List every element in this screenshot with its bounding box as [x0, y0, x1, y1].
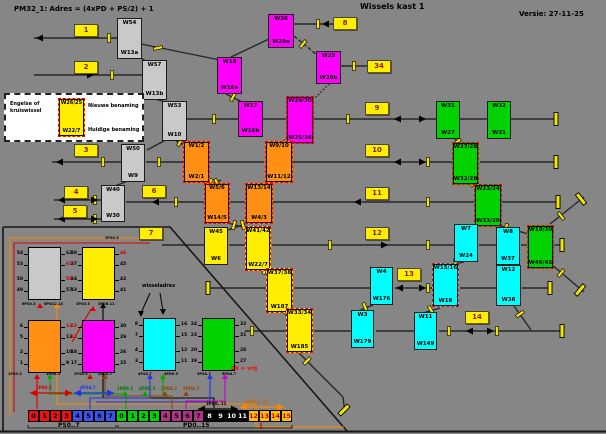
switch-new-name: W8	[503, 230, 513, 236]
route-button-11[interactable]: 11	[365, 187, 389, 200]
switch-new-name: W3	[358, 313, 368, 319]
modec-pin-number: 1	[15, 362, 23, 367]
modec-pin-number: 26	[120, 351, 126, 356]
bus-range-arrowhead	[30, 390, 37, 397]
bus-cell-pd-8-11-8: 8	[204, 410, 215, 422]
direction-arrow	[419, 116, 426, 123]
insulator-tick	[175, 198, 178, 207]
switch-new-name: W13/14	[247, 186, 270, 192]
legend-box: Engelse of kruiswissel W26/25 W22/7 Nieu…	[4, 93, 144, 142]
diagram-label: 5PS4.7	[197, 373, 211, 377]
track-diagonal	[514, 306, 531, 330]
diagram-label: 3PD8.11	[98, 303, 115, 307]
modec-pin-number: 42	[120, 278, 126, 283]
diagram-label: 2PD4.7	[98, 373, 112, 377]
switch-old-name: W29a	[272, 40, 289, 46]
switch-w29-30[interactable]: W29/30W25/26	[286, 96, 314, 144]
switch-old-name: W29b	[320, 76, 338, 82]
modec-pin-number: 33	[69, 289, 77, 294]
bus-cell-ps-high-4: 4	[72, 410, 83, 422]
modec-pin-number: 16	[181, 323, 187, 328]
wire-arrowhead	[90, 306, 96, 311]
switch-old-name: W16b	[242, 129, 260, 135]
bus-cell-pd-12-15-14: 14	[270, 410, 281, 422]
diagram-label: 6PD12.15	[44, 303, 63, 307]
bus-cell-ps-low-3: 3	[61, 410, 72, 422]
switch-w53[interactable]: W53W10	[162, 101, 187, 141]
switch-w13-14[interactable]: W13/14W4/3	[245, 183, 273, 224]
wisseladres-arrowhead	[160, 309, 166, 315]
wire-arrowhead	[34, 374, 40, 379]
switch-old-name: W38	[502, 298, 516, 304]
insulator-tick	[213, 115, 216, 124]
modec-module-modec6	[28, 247, 61, 300]
insulator-tick	[329, 241, 332, 250]
diagram-label: 3PD8..11	[206, 402, 226, 406]
modec-pin-tick	[78, 327, 82, 328]
bus-cell-ps-high-5: 5	[83, 410, 94, 422]
bus-cell-pd-4-7-5: 5	[171, 410, 182, 422]
insulator-tick	[353, 62, 356, 71]
diagram-label: 1PD0.3	[46, 373, 60, 377]
modec-pin-number: 31	[240, 334, 246, 339]
bus-cell-pd-12-15-13: 13	[259, 410, 270, 422]
insulator-tick	[347, 115, 350, 124]
switch-old-name: W30	[106, 214, 120, 220]
modec-pin-tick	[115, 364, 119, 365]
switch-w32[interactable]: W32W31	[487, 101, 511, 139]
modec-pin-number: 38	[69, 252, 77, 257]
switch-new-name: W1/2	[189, 144, 205, 150]
diagram-label: 4PD0.3	[164, 373, 178, 377]
modec-pin-tick	[24, 327, 28, 328]
legend-huidige-benaming: Huidige benaming	[88, 127, 139, 134]
switch-new-name: W57	[148, 63, 162, 69]
modec-pin-number: 22	[69, 325, 77, 330]
route-button-10[interactable]: 10	[365, 144, 389, 157]
route-button-5[interactable]: 5	[63, 205, 87, 218]
bus-cell-ps-high-6: 6	[94, 410, 105, 422]
track-diagonal	[294, 36, 317, 55]
diagram-label: 4PD0.3	[139, 387, 155, 391]
switch-new-name: W26	[274, 17, 288, 23]
route-button-6[interactable]: 6	[142, 185, 166, 198]
switch-w23-24[interactable]: W23/24W33/20	[474, 184, 502, 227]
diagram-label: 2PS0.3	[74, 373, 88, 377]
end-of-track-marker	[560, 239, 564, 252]
switch-old-name: W4/3	[251, 216, 267, 222]
modec-pin-number: 24	[189, 323, 197, 328]
switch-w12[interactable]: W12W38	[496, 265, 521, 306]
modec-pin-tick	[24, 280, 28, 281]
switch-new-name: W17	[244, 104, 258, 110]
switch-old-name: W13a	[121, 51, 138, 57]
switch-new-name: W23/24	[476, 187, 499, 193]
direction-arrow	[394, 159, 401, 166]
direction-arrow	[152, 199, 159, 206]
diagram-label: 4PS4.7	[80, 386, 96, 390]
diagram-label: PD0..15	[183, 423, 209, 429]
switch-w18[interactable]: W18W16a	[217, 57, 242, 94]
bus-range-arrowhead	[65, 390, 72, 397]
switch-w19-20[interactable]: W19/20W46/45	[527, 225, 554, 269]
switch-w17[interactable]: W17W16b	[238, 101, 263, 137]
diagram-label: 1PD0.3	[117, 387, 133, 391]
end-of-track-marker	[554, 113, 558, 126]
modec-pin-tick	[235, 362, 239, 363]
switch-w4[interactable]: W4W176	[370, 267, 393, 305]
direction-arrow	[419, 159, 426, 166]
switch-old-name: W10	[168, 133, 182, 139]
switch-w9-10[interactable]: W9/10W11/12	[265, 141, 293, 183]
modec-pin-number: 53	[15, 263, 23, 268]
modec-pin-tick	[115, 327, 119, 328]
modec-pin-number: 21	[69, 336, 77, 341]
wissels-kast-panel: PM32_1: Adres = (4xPD + PS/2) + 1 Wissel…	[0, 0, 606, 434]
modec-pin-tick	[24, 254, 28, 255]
route-button-1[interactable]: 1	[74, 24, 98, 37]
modec-module-modec2	[82, 320, 115, 373]
switch-old-name: W9	[128, 174, 138, 180]
modec-pin-tick	[24, 291, 28, 292]
route-button-7[interactable]: 7	[139, 227, 163, 240]
diagram-label: 5PD4.7	[222, 373, 236, 377]
insulator-tick	[515, 310, 524, 318]
wire-arrowhead	[183, 391, 189, 396]
bus-cell-pd-0-3-1: 1	[127, 410, 138, 422]
page-title: Wissels kast 1	[360, 2, 424, 11]
modec-pin-tick	[61, 265, 65, 266]
modec-pin-tick	[139, 351, 143, 352]
bus-cell-pd-8-11-9: 9	[215, 410, 226, 422]
track-diagonal	[147, 141, 164, 150]
track-diagonal	[299, 353, 343, 397]
bus-range-arrowhead	[74, 390, 81, 397]
switch-old-name: W46/45	[529, 261, 552, 267]
switch-old-name: W31	[492, 131, 506, 137]
switch-new-name: W19/20	[529, 228, 552, 234]
insulator-tick	[102, 158, 105, 167]
diagram-label: 1PS0.3	[36, 386, 52, 390]
switch-w11[interactable]: W11W149	[414, 312, 437, 350]
modec-pin-tick	[115, 265, 119, 266]
modec-pin-tick	[235, 351, 239, 352]
legend-nieuwe-benaming: Nieuwe benaming	[88, 103, 139, 110]
modec-pin-number: 23	[189, 334, 197, 339]
switch-old-name: W14/5	[207, 216, 227, 222]
modec-pin-tick	[78, 280, 82, 281]
switch-old-name: W6	[211, 257, 221, 263]
switch-new-name: W31	[441, 104, 455, 110]
switch-new-name: W15/16	[434, 266, 457, 272]
switch-old-name: W33/20	[476, 219, 499, 225]
modec-pin-number: 27	[240, 360, 246, 365]
diagram-label: 4PS4.7	[138, 373, 152, 377]
direction-arrow	[56, 159, 63, 166]
modec-pin-tick	[115, 291, 119, 292]
switch-w7[interactable]: W7W24	[454, 224, 478, 262]
diagram-label: 6PD12..15	[245, 400, 268, 404]
switch-new-name: W32	[492, 104, 506, 110]
bus-cell-pd-12-15-15: 15	[281, 410, 292, 422]
switch-new-name: W37/38	[268, 271, 291, 277]
modec-pin-number: 45	[120, 263, 126, 268]
switch-w41-42[interactable]: W41/42W22/7	[245, 226, 271, 271]
switch-old-name: W24	[459, 254, 473, 260]
switch-w25[interactable]: W25W29b	[316, 51, 341, 84]
modec-pin-number: 32	[240, 323, 246, 328]
end-of-track-marker	[560, 325, 564, 338]
modec-pin-tick	[198, 351, 202, 352]
modec-pin-number: 4	[130, 349, 138, 354]
bus-cell-ps-low-1: 1	[39, 410, 50, 422]
insulator-tick	[427, 284, 430, 293]
modec-pin-tick	[24, 353, 28, 354]
direction-arrow	[381, 242, 388, 249]
modec-module-modec4	[143, 318, 176, 371]
diagram-label: 6PS0.3	[22, 303, 36, 307]
track-diagonal	[141, 44, 220, 60]
modec-pin-number: 17	[69, 362, 77, 367]
modec-pin-number: 7	[130, 334, 138, 339]
route-button-4[interactable]: 4	[64, 186, 88, 199]
end-of-track-marker	[575, 193, 586, 206]
switch-new-name: W27/28	[454, 145, 477, 151]
modec-pin-tick	[61, 291, 65, 292]
insulator-tick	[496, 327, 499, 336]
switch-w40[interactable]: W40W30	[101, 185, 125, 222]
route-button-2[interactable]: 2	[74, 61, 98, 74]
switch-new-name: W33/34	[288, 311, 311, 317]
modec-module-modec3	[82, 247, 115, 300]
end-of-track-marker	[554, 156, 558, 169]
modec-pin-number: 37	[69, 263, 77, 268]
insulator-tick	[251, 327, 254, 336]
end-of-track-marker	[556, 196, 560, 209]
switch-old-name: W37	[501, 257, 515, 263]
diagram-label: PS0..7	[58, 423, 80, 429]
address-formula: PM32_1: Adres = (4xPD + PS/2) + 1	[14, 5, 154, 13]
direction-arrow	[396, 285, 403, 292]
switch-old-name: W2/1	[189, 175, 205, 181]
version-label: Versie: 27-11-25	[519, 10, 584, 18]
modec-pin-tick	[176, 362, 180, 363]
modec-pin-number: 41	[120, 289, 126, 294]
switch-w57[interactable]: W57W13b	[142, 60, 167, 100]
switch-new-name: W4	[377, 270, 387, 276]
bus-cell-ps-high-7: 7	[105, 410, 116, 422]
modec-pin-number: 49	[15, 289, 23, 294]
switch-w31[interactable]: W31W27	[436, 101, 460, 139]
insulator-tick	[427, 158, 430, 167]
switch-old-name: W32/28	[454, 177, 477, 183]
modec-pin-tick	[78, 265, 82, 266]
modec-module-modec1	[28, 320, 61, 373]
route-button-13[interactable]: 13	[397, 268, 421, 281]
bus-cell-pd-0-3-3: 3	[149, 410, 160, 422]
switch-old-name: W13b	[146, 92, 164, 98]
switch-new-name: W40	[106, 188, 120, 194]
insulator-tick	[231, 220, 236, 229]
switch-new-name: W11	[419, 315, 433, 321]
modec-pin-tick	[78, 364, 82, 365]
bus-cell-pd-4-7-6: 6	[182, 410, 193, 422]
switch-old-name: W179	[354, 340, 372, 346]
modec-pin-tick	[176, 351, 180, 352]
modec-pin-tick	[24, 364, 28, 365]
switch-w50[interactable]: W50W9	[121, 144, 145, 182]
direction-arrow	[354, 199, 361, 206]
modec-pin-tick	[176, 325, 180, 326]
insulator-tick	[158, 158, 161, 167]
direction-arrow	[487, 328, 494, 335]
modec-pin-tick	[198, 362, 202, 363]
wisseladres-arrow	[160, 293, 163, 311]
legend-text-line1: Engelse of	[10, 101, 39, 108]
modec-pin-number: 30	[120, 325, 126, 330]
switch-w8[interactable]: W8W37	[496, 227, 520, 265]
legend-old-name: W22/7	[63, 129, 81, 134]
modec-pin-tick	[235, 336, 239, 337]
switch-new-name: W5/6	[209, 186, 225, 192]
switch-old-name: W27	[441, 131, 455, 137]
insulator-tick	[427, 241, 430, 250]
bus-cell-pd-8-11-11: 11	[237, 410, 248, 422]
switch-old-name: W16a	[221, 86, 238, 92]
modec-pin-tick	[115, 338, 119, 339]
modec-module-modec5	[202, 318, 235, 371]
switch-old-name: W149	[417, 342, 435, 348]
direction-arrow	[36, 35, 43, 42]
insulator-tick	[111, 71, 114, 80]
modec-pin-tick	[61, 338, 65, 339]
end-of-track-marker	[548, 282, 552, 295]
route-button-12[interactable]: 12	[365, 227, 389, 240]
wire-arrowhead	[37, 303, 43, 308]
legend-new-name: W26/25	[61, 101, 82, 106]
modec-pin-number: 54	[15, 252, 23, 257]
modec-pin-number: 3	[130, 360, 138, 365]
switch-old-name: W19	[439, 299, 453, 305]
modec-pin-tick	[115, 254, 119, 255]
switch-new-name: W41/42	[246, 229, 269, 235]
modec-pin-number: 25	[120, 362, 126, 367]
modec-pin-tick	[198, 325, 202, 326]
wisseladres-arrowhead	[138, 311, 144, 317]
bus-cell-pd-4-7-7: 7	[193, 410, 204, 422]
modec-pin-tick	[198, 336, 202, 337]
diagram-label: 3PS0.3	[105, 237, 119, 241]
bus-cell-pd-12-15-12: 12	[248, 410, 259, 422]
switch-w3[interactable]: W3W179	[351, 310, 374, 348]
legend-crossing-symbol: W26/25 W22/7	[58, 98, 85, 137]
switch-new-name: W45	[209, 230, 223, 236]
wisseladres-arrow	[141, 293, 150, 313]
switch-old-name: W185	[291, 345, 309, 351]
modec-pin-tick	[61, 254, 65, 255]
switch-w5-6[interactable]: W5/6W14/5	[204, 183, 230, 224]
modec-pin-tick	[139, 336, 143, 337]
modec-pin-tick	[24, 265, 28, 266]
switch-w33-34[interactable]: W33/34W185	[286, 308, 313, 353]
modec-pin-number: 29	[120, 336, 126, 341]
modec-pin-tick	[78, 291, 82, 292]
diagram-label: 2PD4.7	[161, 387, 177, 391]
direction-arrow	[394, 116, 401, 123]
modec-pin-tick	[24, 338, 28, 339]
modec-pin-tick	[235, 325, 239, 326]
route-button-3[interactable]: 3	[74, 144, 98, 157]
route-button-14[interactable]: 14	[465, 311, 489, 324]
switch-w1-2[interactable]: W1/2W2/1	[183, 141, 210, 183]
switch-new-name: W12	[502, 268, 516, 274]
modec-pin-number: 50	[15, 278, 23, 283]
legend-text-line2: kruiswissel	[10, 108, 41, 115]
switch-w15-16[interactable]: W15/16W19	[432, 263, 459, 307]
modec-pin-number: 8	[130, 323, 138, 328]
modec-pin-number: 5	[15, 336, 23, 341]
switch-new-name: W7	[461, 227, 471, 233]
modec-pin-number: 46	[120, 252, 126, 257]
modec-pin-tick	[61, 327, 65, 328]
modec-pin-tick	[115, 280, 119, 281]
switch-new-name: W25	[322, 54, 336, 60]
switch-w27-28[interactable]: W27/28W32/28	[452, 142, 479, 185]
modec-pin-number: 6	[15, 325, 23, 330]
modec-pin-tick	[139, 362, 143, 363]
wire-arrowhead	[142, 391, 148, 396]
switch-new-name: W54	[123, 21, 137, 27]
route-button-9[interactable]: 9	[365, 102, 389, 115]
switch-new-name: W53	[168, 104, 182, 110]
end-of-track-marker	[206, 282, 210, 295]
route-button-34[interactable]: 34	[367, 60, 391, 73]
diagram-label: wisseladres	[142, 284, 175, 289]
route-button-8[interactable]: 8	[333, 17, 357, 30]
switch-old-name: W22/7	[248, 263, 268, 269]
bus-cell-ps-low-2: 2	[50, 410, 61, 422]
bus-cell-pd-4-7-4: 4	[160, 410, 171, 422]
modec-pin-tick	[176, 336, 180, 337]
switch-w37-38[interactable]: W37/38W187	[266, 268, 293, 313]
switch-new-name: W29/30	[288, 99, 311, 105]
modec-pin-number: 12	[181, 349, 187, 354]
track-diagonal	[315, 84, 329, 98]
insulator-tick	[448, 327, 451, 336]
switch-new-name: W18	[223, 60, 237, 66]
direction-arrow	[419, 285, 426, 292]
track-diagonal	[231, 39, 269, 57]
modec-pin-number: 28	[240, 349, 246, 354]
modec-pin-number: 2	[15, 351, 23, 356]
switch-old-name: W11/12	[267, 175, 290, 181]
modec-pin-tick	[78, 338, 82, 339]
modec-pin-number: 18	[69, 351, 77, 356]
diagram-label: 1PS0.3	[8, 373, 22, 377]
switch-w54[interactable]: W54W13a	[117, 18, 142, 59]
bus-cell-ps-low-0: 0	[28, 410, 39, 422]
switch-w45[interactable]: W45W6	[204, 227, 228, 265]
modec-pin-tick	[61, 364, 65, 365]
bus-cell-pd-0-3-0: 0	[116, 410, 127, 422]
modec-pin-tick	[61, 353, 65, 354]
insulator-tick	[108, 34, 111, 43]
switch-new-name: W50	[126, 147, 140, 153]
modec-pin-tick	[78, 353, 82, 354]
direction-arrow	[322, 21, 329, 28]
track-diagonal	[550, 197, 584, 224]
switch-w26[interactable]: W26W29a	[268, 14, 294, 48]
